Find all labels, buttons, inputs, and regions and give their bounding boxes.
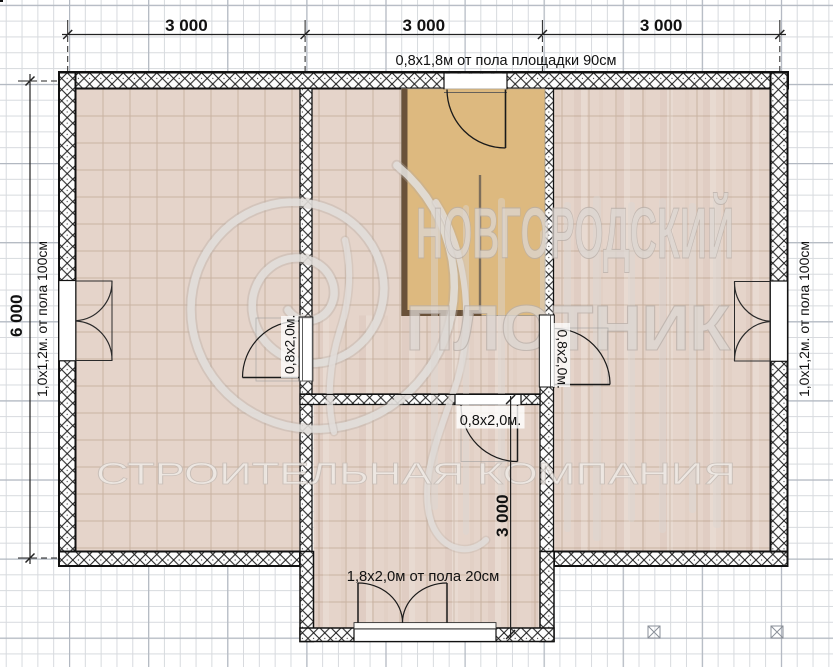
svg-text:1,0х1,2м. от пола 100см: 1,0х1,2м. от пола 100см <box>34 241 50 397</box>
svg-text:СТРОИТЕЛЬНАЯ КОМПАНИЯ: СТРОИТЕЛЬНАЯ КОМПАНИЯ <box>96 456 736 491</box>
svg-text:0,8х2,0м.: 0,8х2,0м. <box>460 413 522 429</box>
svg-text:6 000: 6 000 <box>7 294 26 337</box>
svg-text:0,8х1,8м от пола площадки 90см: 0,8х1,8м от пола площадки 90см <box>396 53 617 69</box>
svg-text:0,8х2,0м.: 0,8х2,0м. <box>555 330 571 389</box>
svg-text:1,0х1,2м. от пола 100см: 1,0х1,2м. от пола 100см <box>796 241 812 397</box>
svg-text:3 000: 3 000 <box>165 16 208 35</box>
svg-text:1,8х2,0м от пола 20см: 1,8х2,0м от пола 20см <box>347 569 500 585</box>
svg-text:3 000: 3 000 <box>640 16 683 35</box>
svg-text:НОВГОРОДСКИЙ: НОВГОРОДСКИЙ <box>416 192 734 274</box>
svg-text:3 000: 3 000 <box>403 16 446 35</box>
svg-text:0,8х2,0м.: 0,8х2,0м. <box>282 315 298 374</box>
svg-text:3 000: 3 000 <box>493 494 512 537</box>
